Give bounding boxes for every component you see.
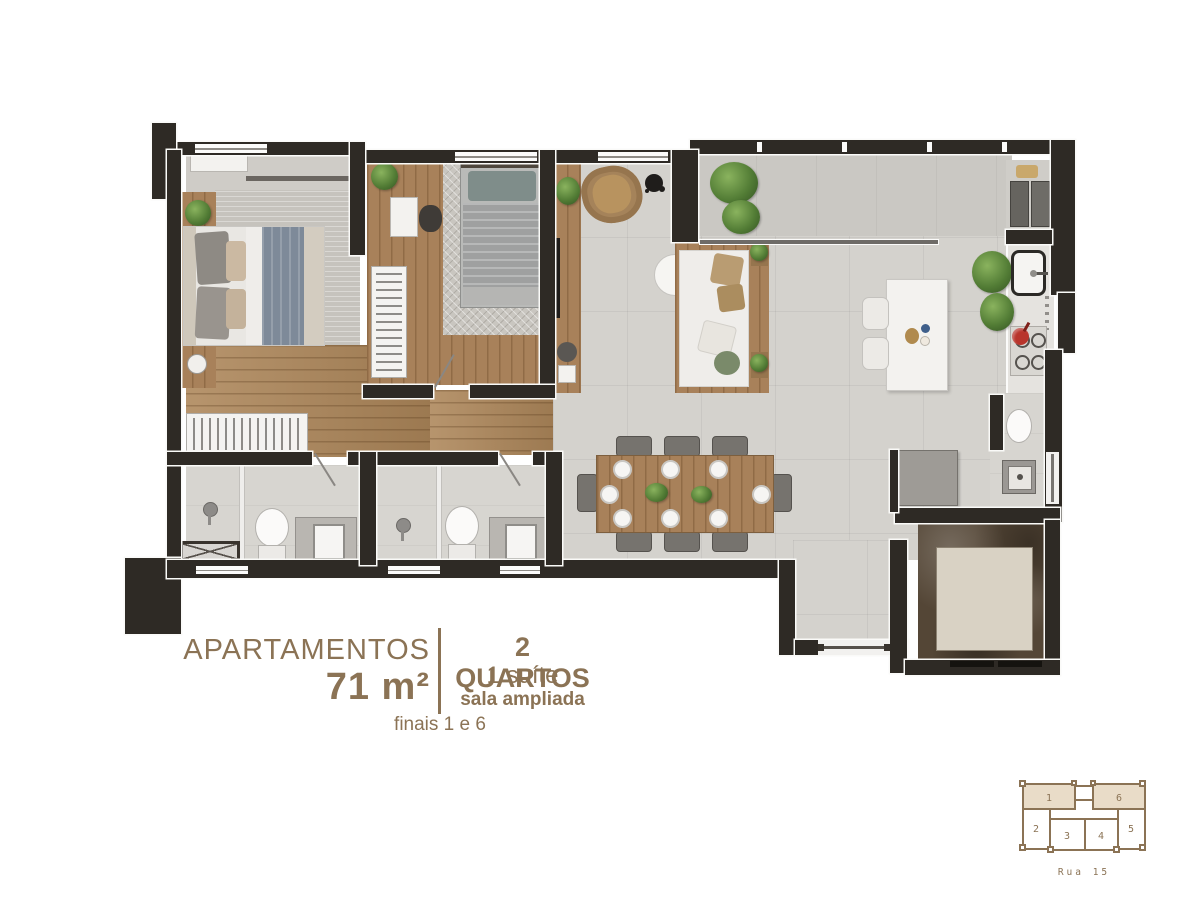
toilet-bowl [1006,409,1032,443]
bath2-toilet [444,506,480,560]
dining-chair [616,531,652,552]
wall-bathrooms-top-a [167,452,312,465]
sink-drain [1030,270,1037,277]
armchair-cushion [589,171,634,216]
keyplan-notch [1140,781,1145,786]
pillow [226,289,246,329]
kitchen-corner-plant [972,251,1012,293]
suite-double-bed [183,226,325,346]
entry-door-hinge [818,644,824,651]
wall-top-balcony [690,140,1075,154]
suite-dresser [190,152,248,172]
living-window [598,152,668,161]
keyplan-notch [1140,845,1145,850]
bedroom2-window [455,152,537,161]
sink-faucet [1036,272,1048,275]
floor-plan [0,0,1200,900]
burner [1031,355,1046,370]
bath1-window [196,566,248,574]
caption-divider [438,628,441,714]
service-cabinet [898,450,958,506]
tv-panel-box [558,365,576,383]
keyplan-notch [1072,781,1076,785]
wall-cabinet-side [890,450,898,512]
toilet-bowl [445,506,479,546]
place-setting [600,485,619,504]
table-centerpiece [645,483,668,502]
bed-blanket [463,203,541,287]
caption-footnote: finais 1 e 6 [320,714,560,736]
entry-door [818,640,890,655]
place-setting [709,460,728,479]
bed-throw [304,227,324,345]
bath2-vanity [489,517,548,564]
floor-lamp [645,174,663,192]
dryer [1031,181,1050,227]
island-decor-bowl [921,324,930,333]
bath2-sink [505,524,537,560]
wall-elevator-top [895,508,1060,523]
dining-chair [616,436,652,457]
entry-vestibule-floor [793,540,890,640]
wall-right-step [1058,293,1075,353]
keyplan-unit-1-label: 1 [1046,793,1052,804]
dining-end-chair [771,474,792,512]
wall-bedroom2-bottom-left [363,385,433,398]
bath1-shower-stem [208,514,211,525]
caption-area: 71 m² [130,666,430,709]
toilet-tank [448,544,476,560]
sofa-pillow [710,253,745,288]
island-decor-food [905,328,919,344]
island-stool2 [862,337,889,370]
pillow [468,171,536,201]
tv-panel-stool [557,342,577,362]
kitchen-sink [1011,250,1046,296]
dining-chair [712,436,748,457]
cooktop [1010,326,1047,376]
dining-table [596,455,774,533]
dining-chair [664,531,700,552]
island-stool [862,297,889,330]
counter-rail-dots [1045,296,1049,330]
hanger-bars [193,418,301,450]
keyplan-notch [1020,781,1025,786]
bedroom2-single-bed [460,156,544,308]
keyplan-unit-5-label: 5 [1128,824,1134,835]
tv-panel-plant [556,177,580,205]
dining-end-chair [577,474,598,512]
entry-door-hinge [884,644,890,651]
place-setting [752,485,771,504]
bath1-toilet [254,508,290,560]
balcony-glass-rail [700,240,938,244]
duct-shaft [180,541,240,562]
washer [1010,181,1029,227]
caption-title: APARTAMENTOS [130,634,430,667]
place-setting [661,460,680,479]
entry-door-leaf [822,646,884,649]
suite-lamp [187,354,207,374]
table-centerpiece [691,486,712,503]
elevator-door-mark [998,661,1042,667]
suite-window [195,144,267,153]
bedroom2-desk-chair [419,205,442,232]
bath2-window [388,566,440,574]
service-toilet [1004,407,1034,443]
wall-suite-bedroom2-divider [350,142,365,255]
bedroom2-clothes-rack [371,266,407,378]
keyplan-unit-6-label: 6 [1116,793,1122,804]
wall-bedroom2-living-divider [540,150,555,397]
pillow [226,241,246,281]
keyplan-unit-2-label: 2 [1033,824,1039,835]
wall-bedroom2-bottom-right [470,385,555,398]
suite-plant [185,200,211,226]
balcony-rail-tick [757,142,762,152]
sofa-corner-plant2 [750,354,768,372]
bedroom2-desk [390,197,418,237]
tank-faucet [1017,474,1023,480]
toilet-tank [258,545,286,561]
bath1-sink [313,524,345,560]
keyplan-notch [1048,847,1053,852]
burner [1031,333,1046,348]
laundry-basket [1016,165,1038,178]
wall-bathroom2-right [546,452,562,565]
dining-chair [712,531,748,552]
kitchen-corner-plant2 [980,293,1014,331]
wall-bottom-main [167,560,795,578]
sofa [679,250,749,387]
wall-bathroom-divider [360,452,376,565]
toilet-bowl [255,508,289,547]
elevator-door-mark [950,661,994,667]
wall-left [167,150,181,582]
wall-laundry-divider [1006,230,1052,244]
balcony-rail-tick [842,142,847,152]
place-setting [661,509,680,528]
building-key-plan: 1 2 3 4 5 6 Rua 15 [1000,776,1160,884]
hanger-bars [376,273,402,371]
closet-clothes-rack [186,413,308,455]
caption-sala: sala ampliada [450,689,595,711]
service-door [1046,452,1059,504]
bath2-shower-glass [437,465,441,563]
wall-balcony-stub [672,150,698,242]
wall-elevator-left [890,540,907,673]
bed-sheet [246,227,262,345]
wall-right-top [1051,140,1075,295]
red-pot [1012,328,1029,345]
bed-blanket [262,227,304,345]
kitchen-island [886,279,948,391]
keyplan-notch [1020,845,1025,850]
bath1-vanity [295,517,357,564]
wall-elevator-right [1045,520,1060,675]
wall-vestibule-left [779,560,795,655]
place-setting [709,509,728,528]
caption-suite: 1 suíte [450,662,595,690]
keyplan-unit-3-label: 3 [1064,831,1070,842]
bath2-window-b [500,566,540,574]
burner [1015,355,1030,370]
floor-plan-page: APARTAMENTOS 71 m² 2 QUARTOS 1 suíte sal… [0,0,1200,900]
suite-headboard-ledge [246,176,354,181]
place-setting [613,460,632,479]
island-decor-plate [920,336,930,346]
sofa-throw-plant [714,351,740,375]
keyplan-notch [1114,847,1119,852]
balcony-plant-large [710,162,758,204]
elevator-cab [936,547,1033,651]
keyplan-street-label: Rua 15 [1058,867,1110,878]
balcony-rail-tick [927,142,932,152]
bedroom2-plant [371,163,398,190]
keyplan-notch [1091,781,1095,785]
bath2-shower-stem [401,530,404,541]
sofa-pillow [716,283,745,312]
sofa-corner-plant [750,243,768,261]
hall-wood-floor [430,390,560,455]
laundry-tank [1002,460,1036,494]
place-setting [613,509,632,528]
wall-service-left-stub [990,395,1003,450]
bath1-shower-glass [240,465,244,563]
service-door-leaf [1051,454,1054,502]
keyplan-unit-4-label: 4 [1098,831,1104,842]
balcony-plant-small [722,200,760,234]
dining-chair [664,436,700,457]
balcony-rail-tick [1002,142,1007,152]
bed-foot-fold [463,287,541,305]
keyplan-core-shape [1075,786,1093,800]
